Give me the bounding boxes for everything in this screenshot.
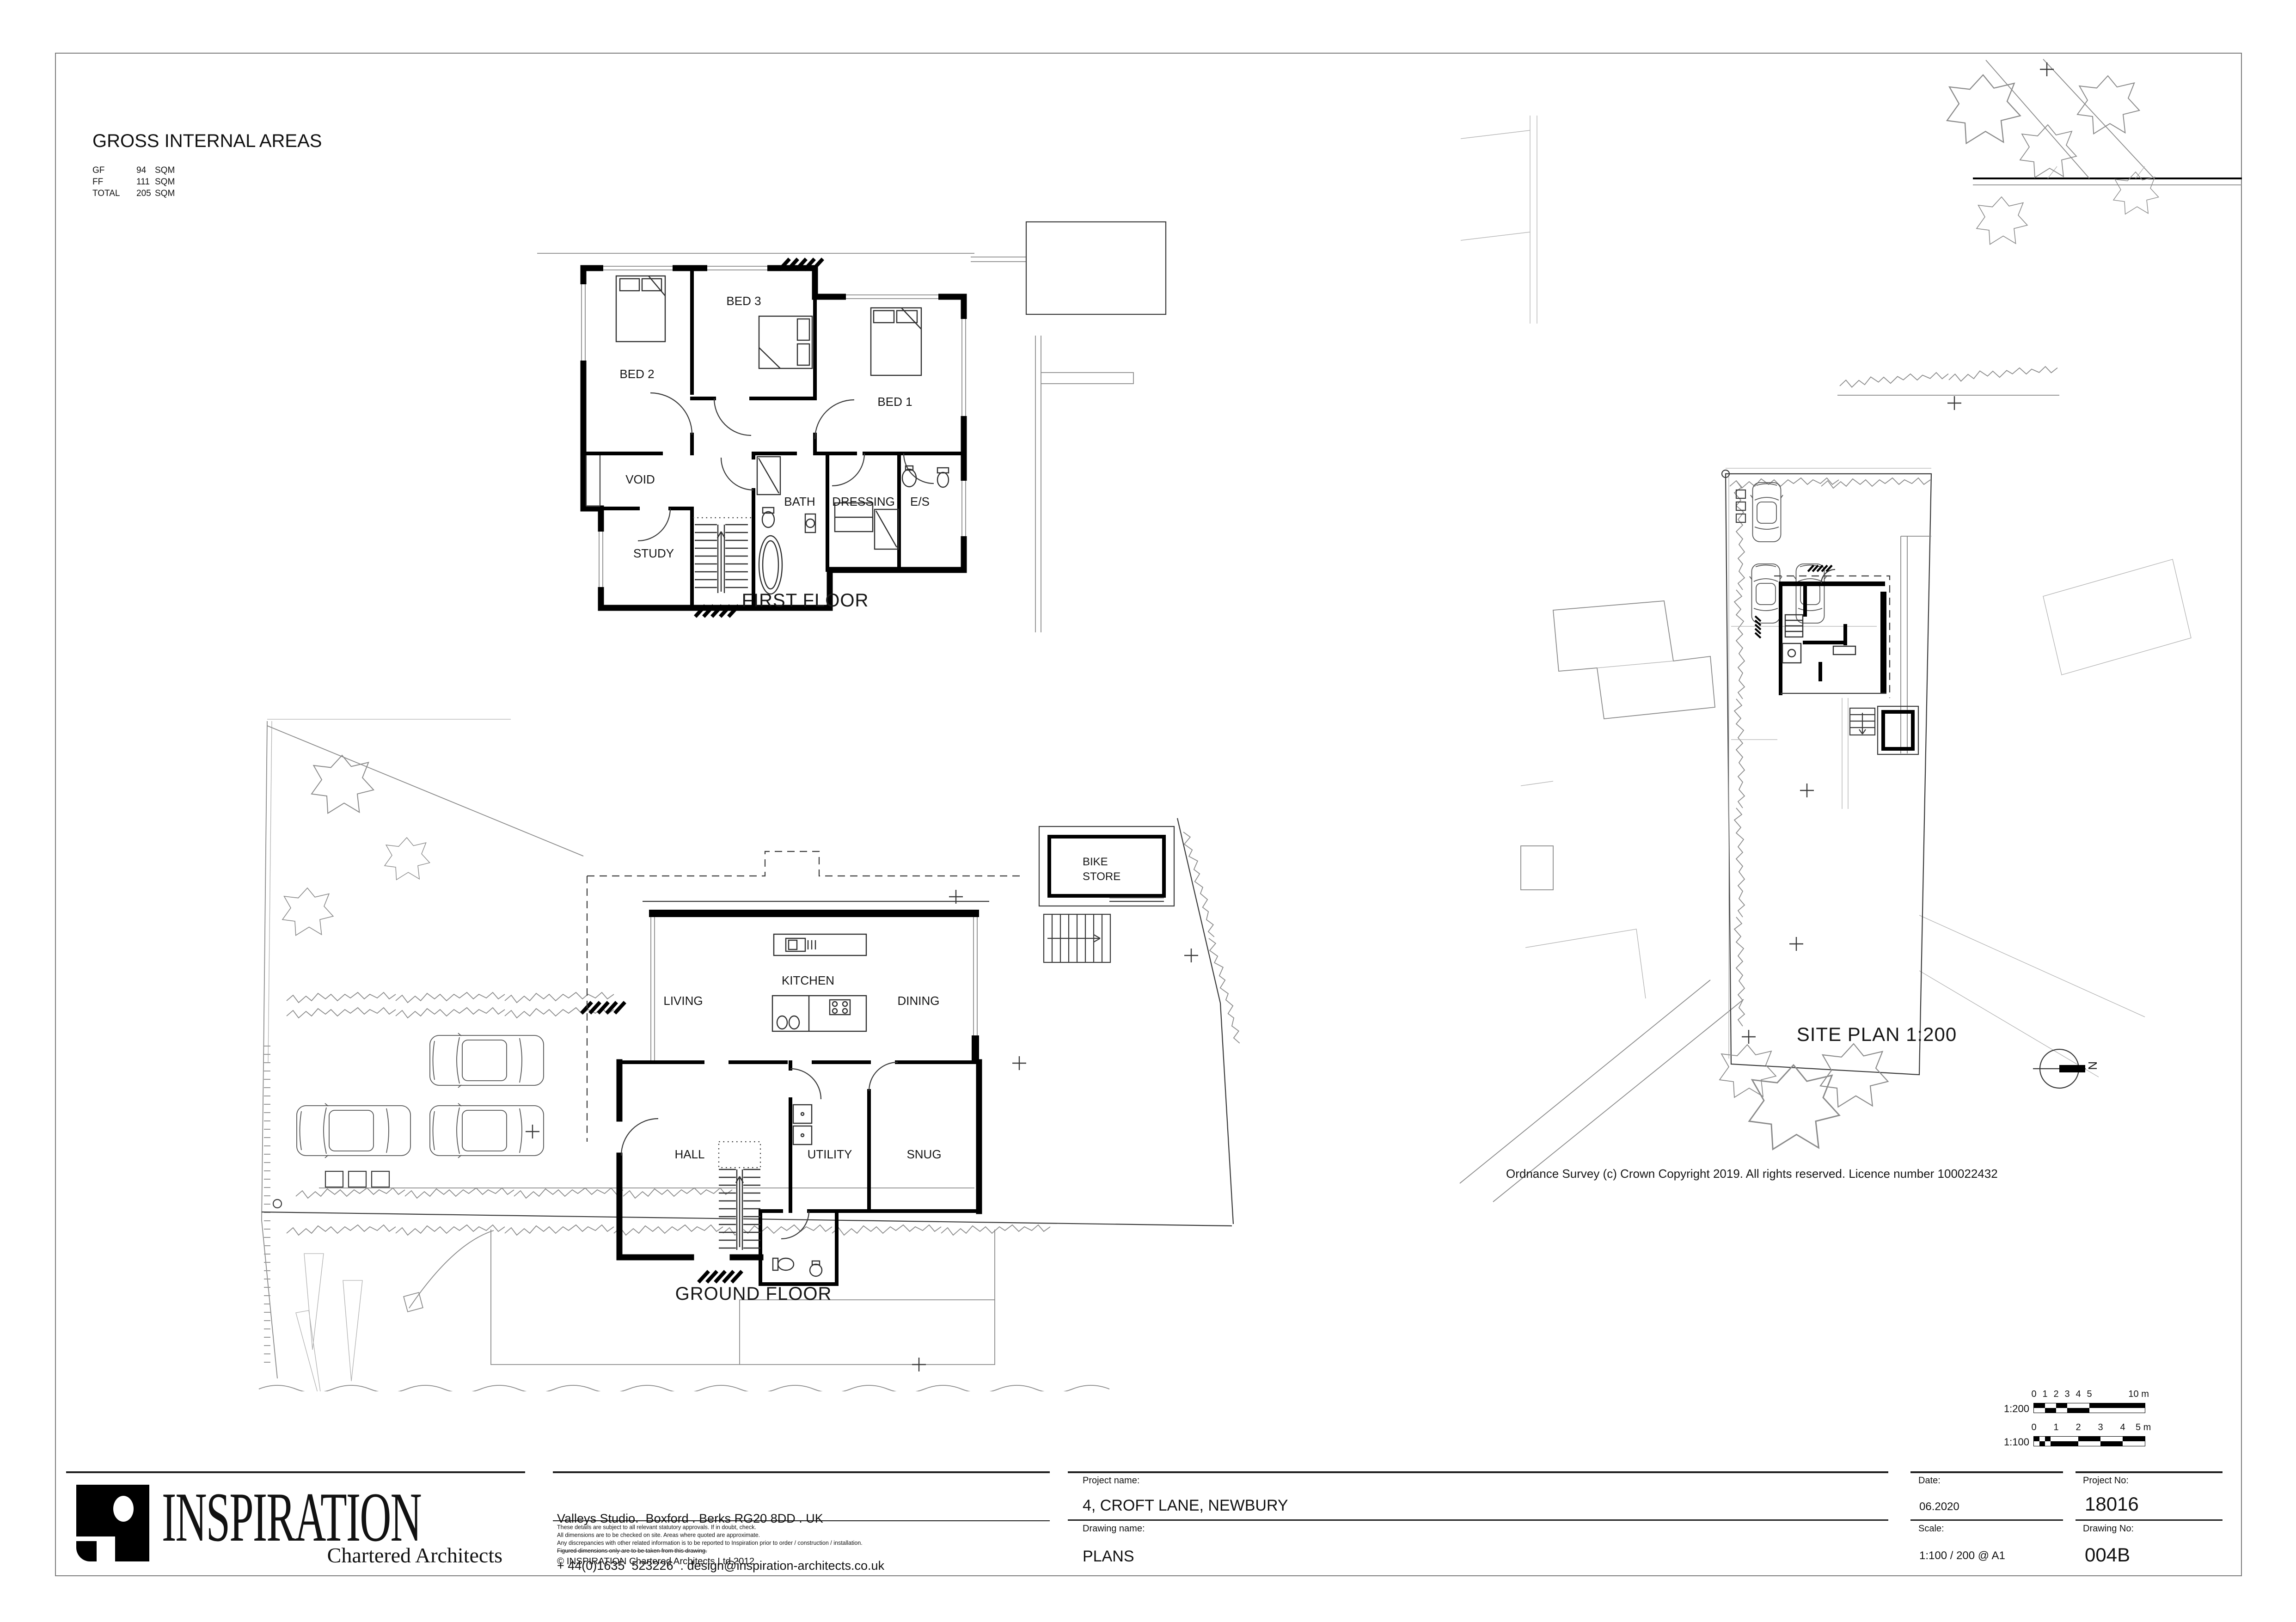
scale-bar-100 bbox=[2034, 1437, 2145, 1446]
scale-100-label: 1:100 bbox=[1985, 1436, 2029, 1448]
bathtub-icon bbox=[759, 536, 782, 594]
tick: 3 bbox=[2064, 1389, 2069, 1400]
tick: 0 bbox=[2031, 1389, 2036, 1400]
tick: 1 bbox=[2053, 1422, 2058, 1433]
bike-store bbox=[1878, 706, 1918, 754]
room-label-bed2: BED 2 bbox=[619, 367, 654, 381]
first-floor-title: FIRST FLOOR bbox=[742, 590, 869, 611]
plot-boundary bbox=[1722, 468, 1931, 1075]
ff-windows bbox=[580, 264, 967, 587]
gia-ff-value: 111 bbox=[136, 176, 155, 188]
car-icon bbox=[1751, 483, 1783, 542]
room-label-study: STUDY bbox=[633, 546, 674, 560]
entrance-hatch bbox=[582, 1002, 625, 1013]
bike-store-label-line2: STORE bbox=[1083, 870, 1120, 883]
kitchen-island-icon bbox=[772, 996, 866, 1031]
inspiration-logo-icon bbox=[76, 1485, 149, 1561]
gf-overhang-dashed bbox=[587, 851, 1024, 1142]
gia-row-ff: FF 111 SQM bbox=[92, 176, 322, 188]
north-label: N bbox=[2086, 1061, 2100, 1070]
car-icon bbox=[1750, 564, 1782, 623]
bed-icon bbox=[616, 276, 665, 342]
drawing-no-label: Drawing No: bbox=[2083, 1524, 2134, 1534]
firm-subtitle: Chartered Architects bbox=[277, 1543, 502, 1567]
tick: 0 bbox=[2031, 1422, 2036, 1433]
site-house bbox=[1731, 536, 1931, 809]
car-icon bbox=[430, 1103, 544, 1158]
gf-garden-lines bbox=[259, 818, 1233, 1391]
disclaimer-line: These details are subject to all relevan… bbox=[557, 1524, 1047, 1531]
stairs-icon bbox=[719, 1142, 760, 1250]
hedge-icon bbox=[287, 830, 1242, 1235]
stairs-icon bbox=[693, 518, 751, 593]
room-label-bed1: BED 1 bbox=[877, 395, 912, 409]
gia-row-gf: GF 94 SQM bbox=[92, 165, 322, 176]
bike-store-label-line1: BIKE bbox=[1083, 856, 1108, 868]
gia-gf-label: GF bbox=[92, 165, 136, 176]
gia-total-value: 205 bbox=[136, 188, 155, 199]
kitchen-counter-icon bbox=[774, 934, 866, 955]
car-icon bbox=[297, 1103, 410, 1158]
hedge-icon bbox=[1730, 478, 1930, 1026]
bed-icon bbox=[759, 316, 812, 368]
tick: 5 bbox=[2087, 1389, 2092, 1400]
room-label-dressing: DRESSING bbox=[832, 495, 895, 508]
shower-icon bbox=[757, 457, 780, 495]
gia-total-label: TOTAL bbox=[92, 188, 136, 199]
tick: 1 bbox=[2042, 1389, 2047, 1400]
date-label: Date: bbox=[1918, 1475, 1941, 1486]
bin-squares bbox=[1736, 490, 1745, 522]
ground-floor-title: GROUND FLOOR bbox=[675, 1284, 832, 1304]
room-label-utility: UTILITY bbox=[808, 1147, 852, 1161]
firm-copyright: © INSPIRATION Chartered Architects Ltd 2… bbox=[557, 1556, 754, 1567]
ground-floor-plan: LIVING KITCHEN DINING HALL UTILITY SNUG … bbox=[250, 670, 1368, 1391]
room-label-kitchen: KITCHEN bbox=[782, 973, 834, 987]
scale-200-label: 1:200 bbox=[1985, 1403, 2029, 1415]
basin-icon bbox=[810, 1261, 822, 1276]
room-label-void: VOID bbox=[625, 472, 655, 486]
gf-site-context bbox=[262, 719, 583, 1378]
tree-icon bbox=[1839, 75, 2159, 388]
project-name-label: Project name: bbox=[1083, 1475, 1139, 1486]
basin-icon bbox=[805, 514, 815, 533]
tick: 4 bbox=[2076, 1389, 2081, 1400]
shower-icon bbox=[875, 509, 899, 549]
north-arrow-icon: N bbox=[2033, 1049, 2100, 1088]
toilet-icon bbox=[937, 468, 949, 487]
disclaimer-line: All dimensions are to be checked on site… bbox=[557, 1531, 1047, 1539]
disclaimer-line-struck: Figured dimensions only are to be taken … bbox=[557, 1547, 1047, 1555]
level-marks bbox=[1742, 62, 2054, 1044]
appliance-icon bbox=[793, 1105, 812, 1145]
tick: 3 bbox=[2098, 1422, 2103, 1433]
date-value: 06.2020 bbox=[1919, 1500, 1959, 1513]
bed-icon bbox=[871, 308, 921, 375]
room-label-snug: SNUG bbox=[906, 1147, 941, 1161]
room-label-living: LIVING bbox=[663, 994, 703, 1008]
scale-bars: 1:200 0 1 2 3 4 5 10 m 1:100 0 1 2 3 4 5… bbox=[1967, 1380, 2253, 1468]
room-label-es: E/S bbox=[910, 495, 930, 508]
site-plan-title: SITE PLAN 1:200 bbox=[1797, 1023, 1957, 1045]
entrance-hatch bbox=[698, 1271, 742, 1282]
hedge-icon bbox=[287, 992, 614, 1018]
toilet-icon bbox=[762, 508, 774, 527]
gia-title: GROSS INTERNAL AREAS bbox=[92, 131, 322, 152]
disclaimers: These details are subject to all relevan… bbox=[557, 1524, 1047, 1555]
gross-internal-areas: GROSS INTERNAL AREAS GF 94 SQM FF 111 SQ… bbox=[92, 131, 322, 199]
scale-label: Scale: bbox=[1918, 1524, 1944, 1534]
room-label-bath: BATH bbox=[784, 495, 815, 508]
scale-value: 1:100 / 200 @ A1 bbox=[1919, 1549, 2005, 1562]
drawing-name-label: Drawing name: bbox=[1083, 1524, 1145, 1534]
external-steps-icon bbox=[1850, 708, 1875, 735]
drawing-no-value: 004B bbox=[2085, 1544, 2130, 1566]
tick: 10 m bbox=[2128, 1389, 2149, 1400]
gia-total-unit: SQM bbox=[155, 188, 175, 199]
site-plan: N SITE PLAN 1:200 Ordnance Survey (c) Cr… bbox=[1456, 55, 2242, 1211]
room-label-bed3: BED 3 bbox=[726, 294, 761, 308]
tick: 2 bbox=[2076, 1422, 2081, 1433]
project-name-value: 4, CROFT LANE, NEWBURY bbox=[1083, 1497, 1288, 1515]
project-no-value: 18016 bbox=[2085, 1493, 2139, 1515]
room-label-dining: DINING bbox=[898, 994, 940, 1008]
tick: 2 bbox=[2053, 1389, 2058, 1400]
tick: 4 bbox=[2120, 1422, 2125, 1433]
os-copyright: Ordnance Survey (c) Crown Copyright 2019… bbox=[1506, 1167, 1998, 1181]
project-no-label: Project No: bbox=[2083, 1475, 2129, 1486]
toilet-icon bbox=[773, 1258, 794, 1270]
scale-bar-200 bbox=[2034, 1403, 2145, 1413]
gia-gf-unit: SQM bbox=[155, 165, 175, 176]
gia-row-total: TOTAL 205 SQM bbox=[92, 188, 322, 199]
disclaimer-line: Any discrepancies with other related inf… bbox=[557, 1539, 1047, 1547]
gia-ff-label: FF bbox=[92, 176, 136, 188]
firm-name: INSPIRATION bbox=[162, 1482, 421, 1552]
tree-icon bbox=[1720, 1044, 1888, 1149]
external-steps-icon bbox=[1044, 914, 1110, 962]
gia-ff-unit: SQM bbox=[155, 176, 175, 188]
room-label-hall: HALL bbox=[674, 1147, 704, 1161]
drawing-name-value: PLANS bbox=[1083, 1548, 1134, 1566]
gia-gf-value: 94 bbox=[136, 165, 155, 176]
ff-doors bbox=[638, 393, 934, 541]
first-floor-plan: BED 2 BED 3 BED 1 VOID STUDY BATH DRESSI… bbox=[532, 194, 1225, 633]
tick: 5 m bbox=[2136, 1422, 2151, 1433]
car-icon bbox=[430, 1033, 544, 1088]
